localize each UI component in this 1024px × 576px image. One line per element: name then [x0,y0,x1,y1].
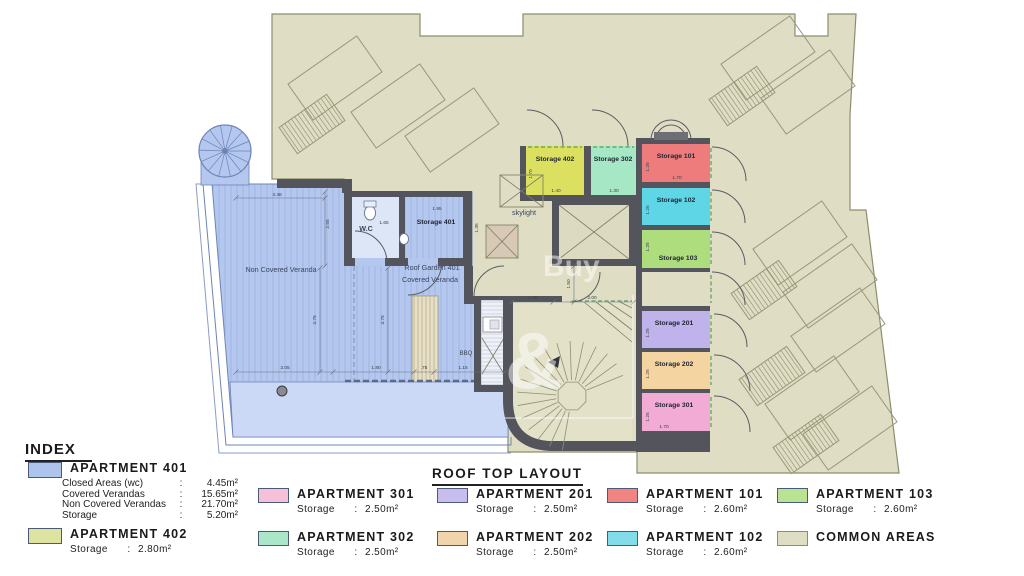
storage-302-floor [591,146,636,195]
apartment-302-label: APARTMENT 302 [297,530,414,544]
covered-veranda-label: Covered Veranda [402,275,458,284]
dim-301-bottom: 1.70 [659,424,669,430]
dim-c2: 2.00 [587,295,597,301]
veranda-lower-strip [230,382,508,437]
dim-b4: 1.15 [458,365,468,371]
storage-202-label: Storage 202 [655,361,694,368]
storage-102-label: Storage 102 [657,197,696,204]
dim-b2: 1.80 [371,365,381,371]
dim-101-side: 1.25 [645,162,651,172]
bbq-sink-basin [490,320,499,329]
toilet-icon [365,206,376,220]
storage-101-room: Storage 101 1.25 1.70 [642,144,711,182]
storage-102-floor [642,188,710,225]
apartment-201-label: APARTMENT 201 [476,487,593,501]
storage-402-room: Storage 402 1.70 1.40 [520,146,590,201]
wc-door-gap [355,258,385,266]
dim-402-bottom: 1.40 [551,188,561,194]
dim-top: 3.48 [272,192,282,198]
dim-102-side: 1.25 [645,205,651,215]
detail-row: Closed Areas (wc):4.45m² [62,479,238,490]
apartment-103-swatch [777,488,808,503]
common-areas-label: COMMON AREAS [816,530,936,544]
dim-s401-side: 1.35 [474,223,480,233]
apartment-401-label: APARTMENT 401 [70,461,187,475]
storage-301-floor [642,393,710,431]
wall-corner [342,179,352,193]
index-heading: INDEX [25,441,92,462]
dim-b1: 3.05 [280,365,290,371]
storage-301-label: Storage 301 [655,402,694,409]
storage-302-label: Storage 302 [594,156,633,163]
spiral-stair-post [222,148,228,154]
column [277,386,287,396]
legend-apartment-103: APARTMENT 103 Storage:2.60m² [777,487,933,515]
roof-hatch [654,132,688,140]
apartment-101-label: APARTMENT 101 [646,487,763,501]
page-title: ROOF TOP LAYOUT [432,466,583,486]
dim-301-side: 1.25 [645,412,651,422]
dim-302-bottom: 1.30 [609,188,619,194]
storage-103-room: Storage 103 1.25 [642,230,711,268]
storage-401-label: Storage 401 [417,219,456,226]
storage-101-label: Storage 101 [657,153,696,160]
common-areas-swatch [777,531,808,546]
apartment-401-details: Closed Areas (wc):4.45m² Covered Veranda… [62,479,238,521]
apartment-402-swatch [28,528,62,544]
storage-202-room: Storage 202 1.25 [642,352,711,389]
storage-302-room: Storage 302 1.30 [585,146,642,201]
legend-apartment-301: APARTMENT 301 Storage:2.50m² [258,487,414,515]
wall-bbq-left [474,296,481,392]
bbq-label: BBQ [460,351,473,357]
dim-s401-top: 1.95 [432,206,442,212]
apartment-202-label: APARTMENT 202 [476,530,593,544]
toilet-tank-icon [364,201,376,207]
legend-apartment-201: APARTMENT 201 Storage:2.50m² [437,487,593,515]
dim-202-side: 1.25 [645,369,651,379]
storage-103-floor [642,230,710,268]
apartment-101-swatch [607,488,638,503]
dim-v2: 3.75 [380,315,386,325]
apartment-402-storage: Storage:2.80m² [70,544,187,555]
skylight-label: skylight [512,208,536,217]
dim-v1: 3.75 [312,315,318,325]
apartment-202-swatch [437,531,468,546]
non-covered-veranda-label: Non Covered Veranda [245,265,316,274]
legend-apartment-401: APARTMENT 401 [28,461,187,478]
sink-icon [400,234,409,245]
apartment-301-label: APARTMENT 301 [297,487,414,501]
apartment-301-swatch [258,488,289,503]
apartment-201-swatch [437,488,468,503]
dim-402-side: 1.70 [528,169,534,179]
apartment-401-swatch [28,462,62,478]
apartment-302-swatch [258,531,289,546]
dim-101-bottom: 1.70 [672,175,682,181]
dim-wc: 1.65 [379,220,389,226]
storage-201-label: Storage 201 [655,320,694,327]
dim-201-side: 1.25 [645,328,651,338]
watermark-ampersand: & [505,316,563,405]
storage-102-room: Storage 102 1.25 [642,188,711,225]
watermark-word: Buy [543,250,600,283]
legend-apartment-302: APARTMENT 302 Storage:2.50m² [258,530,414,558]
apartment-103-label: APARTMENT 103 [816,487,933,501]
dim-c1: 1.00 [528,295,538,301]
dim-left-v: 2.55 [325,219,331,229]
dim-103-side: 1.25 [645,242,651,252]
storage-201-floor [642,311,710,348]
legend-apartment-101: APARTMENT 101 Storage:2.60m² [607,487,763,515]
legend-apartment-102: APARTMENT 102 Storage:2.60m² [607,530,763,558]
storage-corridor-gap [642,272,710,306]
storage-201-room: Storage 201 1.25 [642,311,711,348]
detail-row: Non Covered Verandas:21.70m² [62,500,238,511]
apartment-102-swatch [607,531,638,546]
wall-top-veranda [277,179,344,188]
storage-301-room: Storage 301 1.25 1.70 [642,393,711,431]
legend-apartment-402: APARTMENT 402 Storage:2.80m² [28,527,187,555]
rooftop-plan-page: W.C Storage 401 1.95 1.35 1.65 Storage 4… [0,0,1024,576]
storage-402-label: Storage 402 [536,156,575,163]
roof-garden-label: Roof Garden 401 [404,263,459,272]
apartment-402-label: APARTMENT 402 [70,527,187,541]
apartment-102-label: APARTMENT 102 [646,530,763,544]
legend-common-areas: COMMON AREAS [777,530,936,546]
wc-storage401-block: W.C Storage 401 1.95 1.35 1.65 [352,197,480,266]
detail-row: Storage:5.20m² [62,511,238,522]
storage-202-floor [642,352,710,389]
storage-103-label: Storage 103 [659,255,698,262]
legend-apartment-202: APARTMENT 202 Storage:2.50m² [437,530,593,558]
dim-b3: .75 [421,365,428,371]
storage-402-floor [526,146,584,195]
